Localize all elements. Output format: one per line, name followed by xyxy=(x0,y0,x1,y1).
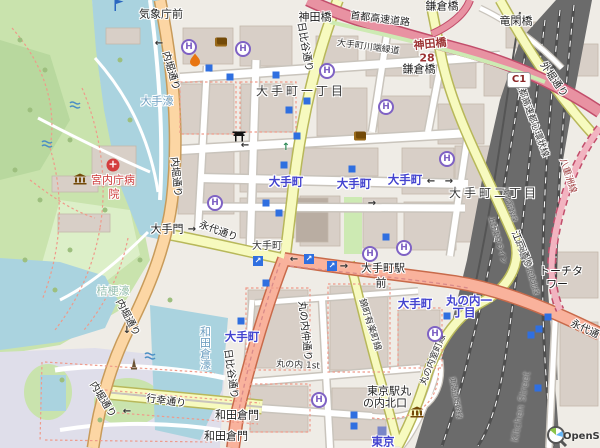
subway-entrance-icon xyxy=(263,280,270,287)
label-road-shuto-kanjo: 首都高速都心環状線 xyxy=(513,79,549,158)
subway-entrance-icon xyxy=(444,313,451,320)
helipad-icon: H xyxy=(311,392,327,408)
label-kunaicho-hospital-1: 宮内庁病 xyxy=(91,175,135,186)
oneway-arrow-icon: ← xyxy=(290,255,298,265)
helipad-icon: H xyxy=(319,63,335,79)
label-tokyo-sta-north-exit-1: 東京駅丸 xyxy=(367,386,411,397)
label-road-hibiya-north: 日比谷通り xyxy=(295,22,314,73)
station-square-icon xyxy=(378,427,387,436)
subway-entrance-icon xyxy=(227,74,234,81)
hospital-cross-icon: + xyxy=(107,159,120,172)
subway-entrance-icon xyxy=(535,385,542,392)
label-station-tokyo: 東京 xyxy=(372,436,395,448)
subway-entrance-icon xyxy=(536,326,543,333)
label-place-otemachi-1chome: 大手町一丁目 xyxy=(256,85,346,97)
map-canvas[interactable]: OpenStreetMap 気象庁前内堀通り大手濠神田橋首都高速道路鎌倉橋竜閑橋… xyxy=(0,0,600,448)
oneway-arrow-icon: → xyxy=(340,262,348,272)
elevator-icon: ↗ xyxy=(253,256,263,266)
oneway-arrow-icon: ← xyxy=(427,177,435,187)
label-station-otemachi-2: 大手町 xyxy=(337,178,372,190)
label-otemachi-ekimae-1: 大手町駅 xyxy=(361,263,405,274)
label-kunaicho-hospital-2: 院 xyxy=(109,189,120,200)
label-road-sotobori: 外堀通り xyxy=(537,61,568,100)
subway-entrance-icon xyxy=(206,65,213,72)
label-bridge-kamakurabashi: 鎌倉橋 xyxy=(403,64,436,75)
osm-attribution[interactable]: OpenStreetMap xyxy=(563,431,600,442)
label-gate-otemon: 大手門 xyxy=(151,224,184,235)
subway-entrance-icon xyxy=(281,162,288,169)
label-gate-wadakuramon-1: 和田倉門 xyxy=(215,410,259,421)
oneway-arrow-icon: ← xyxy=(123,407,131,417)
subway-entrance-icon xyxy=(351,423,358,430)
oneway-arrow-icon: → xyxy=(188,225,196,235)
oneway-arrow-icon: ← xyxy=(155,39,163,49)
helipad-icon: H xyxy=(181,39,197,55)
subway-entrance-icon xyxy=(304,98,311,105)
label-otemachi-minor: 大手町 xyxy=(252,242,282,252)
elevator-icon: ↗ xyxy=(327,261,337,271)
oneway-arrow-icon: → xyxy=(368,199,376,209)
label-road-yaesu-line: 八重洲線 xyxy=(557,157,577,194)
elevator-icon: ↗ xyxy=(304,254,314,264)
label-rail-keihin-tohoku: 京浜東北線 xyxy=(523,260,539,296)
subway-entrance-icon xyxy=(263,200,270,207)
oneway-arrow-icon: ↑ xyxy=(282,143,290,153)
helipad-icon: H xyxy=(207,195,223,211)
label-place-marunouchi-1chome-b: 丁目 xyxy=(453,307,476,319)
label-overlay: OpenStreetMap 気象庁前内堀通り大手濠神田橋首都高速道路鎌倉橋竜閑橋… xyxy=(0,0,600,448)
label-water-wadakurabori: 和田倉濠 xyxy=(200,326,211,370)
label-road-marunouchi-1st: 丸の内 1st xyxy=(276,360,320,371)
subway-entrance-icon xyxy=(545,314,552,321)
fountain-icon xyxy=(144,351,156,361)
label-water-kikyobori: 桔梗濠 xyxy=(97,286,130,297)
helipad-icon: H xyxy=(378,99,394,115)
flame-icon xyxy=(189,54,201,67)
theatre-icon xyxy=(354,132,366,141)
fountain-icon xyxy=(41,139,53,149)
label-shield-c1: C1 xyxy=(507,72,531,88)
subway-entrance-icon xyxy=(238,318,245,325)
museum-icon xyxy=(74,174,87,185)
label-station-otemachi-3: 大手町 xyxy=(388,174,423,186)
helipad-icon: H xyxy=(427,326,443,342)
label-bus-kishochomae: 気象庁前 xyxy=(139,9,183,20)
flag-icon xyxy=(114,0,125,11)
label-road-kawabata-ryokudo: 大手町川端緑道 xyxy=(336,39,400,57)
oneway-arrow-icon: → xyxy=(445,177,453,187)
subway-entrance-icon xyxy=(349,166,356,173)
fountain-icon xyxy=(69,100,81,110)
label-road-hibiya-south: 日比谷通り xyxy=(222,349,239,400)
label-station-otemachi-1: 大手町 xyxy=(269,176,304,188)
helipad-icon: H xyxy=(439,151,455,167)
subway-entrance-icon xyxy=(286,107,293,114)
label-road-marunouchi-naka: 丸の内仲通り xyxy=(296,301,312,362)
label-road-shuto-expwy: 首都高速道路 xyxy=(350,11,411,28)
subway-entrance-icon xyxy=(276,210,283,217)
label-road-uchibori-2: 内堀通り xyxy=(168,157,182,198)
label-road-eitai-east: 永代通り xyxy=(569,319,600,345)
subway-entrance-icon xyxy=(383,234,390,241)
label-place-otemachi-2chome: 大手町二丁目 xyxy=(449,187,539,199)
monument-icon xyxy=(130,358,138,370)
helipad-icon: H xyxy=(235,41,251,57)
helipad-icon: H xyxy=(396,240,412,256)
label-road-uchibori-4: 内堀通り xyxy=(87,380,117,419)
oneway-arrow-icon: ← xyxy=(241,141,249,151)
oneway-arrow-icon: ↓ xyxy=(123,326,131,336)
label-road-gyoko-dori: 行幸通り xyxy=(145,394,186,409)
label-torch-tower-1: トーチタ xyxy=(539,266,583,277)
label-water-otebori: 大手濠 xyxy=(141,96,174,107)
label-otemachi-ekimae-2: 前 xyxy=(376,278,387,289)
subway-entrance-icon xyxy=(351,412,358,419)
label-exit-kandabashi: 神田橋 xyxy=(413,37,447,51)
helipad-icon: H xyxy=(362,246,378,262)
label-road-uchibori-1: 内堀通り xyxy=(160,50,181,91)
label-bridge-ryukanbashi: 竜閑橋 xyxy=(500,16,533,27)
label-rail-ueno-tokyo-line: 上野東京ライン xyxy=(487,215,507,264)
theatre-icon xyxy=(215,38,227,47)
subway-entrance-icon xyxy=(528,332,535,339)
label-road-eitai-west: 永代通り xyxy=(197,220,238,243)
label-station-otemachi-4: 大手町 xyxy=(398,298,433,310)
label-bridge-kamakurabashi-top: 鎌倉橋 xyxy=(426,1,459,12)
label-torch-tower-2: ワー xyxy=(546,279,568,290)
museum-icon xyxy=(411,407,424,418)
label-rail-tokaido-shinkansen: 東海道新幹線 xyxy=(448,377,462,420)
label-kitchen-street: Kitchen Street xyxy=(511,371,533,443)
label-station-otemachi-5: 大手町 xyxy=(225,331,260,343)
label-gate-wadakuramon-2: 和田倉門 xyxy=(204,431,248,442)
subway-entrance-icon xyxy=(273,72,280,79)
label-road-nishikicho-yurakucho: 錦町有楽町線 xyxy=(356,298,381,352)
label-tokyo-sta-north-exit-2: の内北口 xyxy=(363,398,407,409)
subway-entrance-icon xyxy=(294,133,301,140)
